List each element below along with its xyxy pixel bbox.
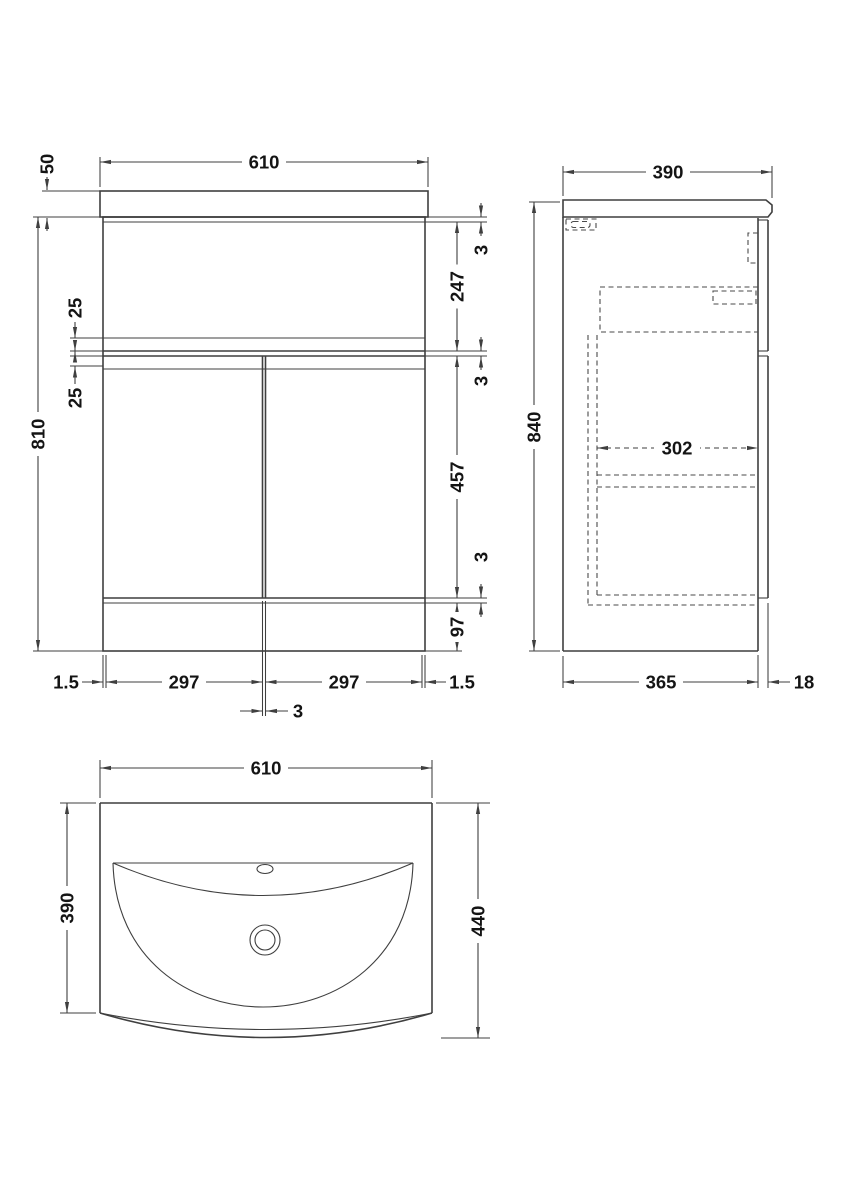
plan-waste-inner: [255, 930, 275, 950]
vanity-unit-drawing: 610 50 810 25 25: [0, 0, 848, 1200]
dim-front-rail-upper: 25: [64, 298, 85, 319]
dim-side-door-thickness: 18: [794, 671, 815, 692]
plan-basin-ledge-curve: [113, 863, 413, 896]
dim-front-bottom-gap: 3: [470, 552, 491, 562]
front-view: 610 50 810 25 25: [27, 151, 491, 721]
dim-side-carcass-depth: 365: [646, 671, 677, 692]
dim-front-door-left: 297: [169, 671, 200, 692]
dim-front-worktop-height: 50: [36, 154, 57, 175]
front-worktop: [100, 191, 428, 217]
dim-front-plinth-height: 97: [446, 617, 467, 638]
dim-plan-basin-depth: 390: [56, 893, 77, 924]
technical-drawing-page: 610 50 810 25 25: [0, 0, 848, 1200]
side-fixing-bracket-inner: [571, 222, 590, 228]
dim-side-internal-depth: 302: [662, 437, 693, 458]
side-drawer-runner: [713, 291, 756, 304]
dim-plan-width: 610: [251, 757, 282, 778]
dim-front-rail-lower: 25: [64, 388, 85, 409]
dim-front-door-right: 297: [329, 671, 360, 692]
dim-front-left-margin: 1.5: [53, 671, 79, 692]
dim-side-depth: 390: [653, 161, 684, 182]
side-outline: [563, 200, 772, 651]
side-front-bracket: [748, 233, 758, 263]
dim-front-top-gap: 3: [470, 245, 491, 255]
side-worktop: [563, 200, 772, 217]
side-drawer-box: [600, 287, 758, 332]
plan-front-outer-curve: [100, 1013, 432, 1038]
plan-basin-bowl-curve: [113, 863, 413, 1007]
dim-front-cabinet-height: 810: [27, 419, 48, 450]
dim-front-right-margin: 1.5: [449, 671, 475, 692]
plan-view: 610 390 440: [56, 757, 490, 1038]
side-dimensions: 390 840 302 365 18: [523, 161, 814, 692]
dim-plan-overall-depth: 440: [467, 906, 488, 937]
dim-front-door-height: 457: [446, 462, 467, 493]
plan-dimensions: 610 390 440: [56, 757, 490, 1038]
side-view: 390 840 302 365 18: [523, 161, 814, 692]
dim-front-drawer-height: 247: [446, 271, 467, 302]
dim-front-mid-gap: 3: [470, 376, 491, 386]
plan-front-inner-curve: [100, 1013, 432, 1030]
front-outline: [100, 191, 428, 651]
dim-front-door-gap: 3: [293, 700, 303, 721]
side-fixing-bracket-outer: [566, 219, 596, 230]
dim-side-height: 840: [523, 412, 544, 443]
plan-outline: [100, 803, 432, 1038]
front-cabinet: [103, 217, 425, 651]
side-hidden-details: [566, 219, 758, 605]
plan-tap-hole: [257, 865, 273, 874]
front-dimensions: 610 50 810 25 25: [27, 151, 491, 721]
dim-front-width: 610: [249, 151, 280, 172]
